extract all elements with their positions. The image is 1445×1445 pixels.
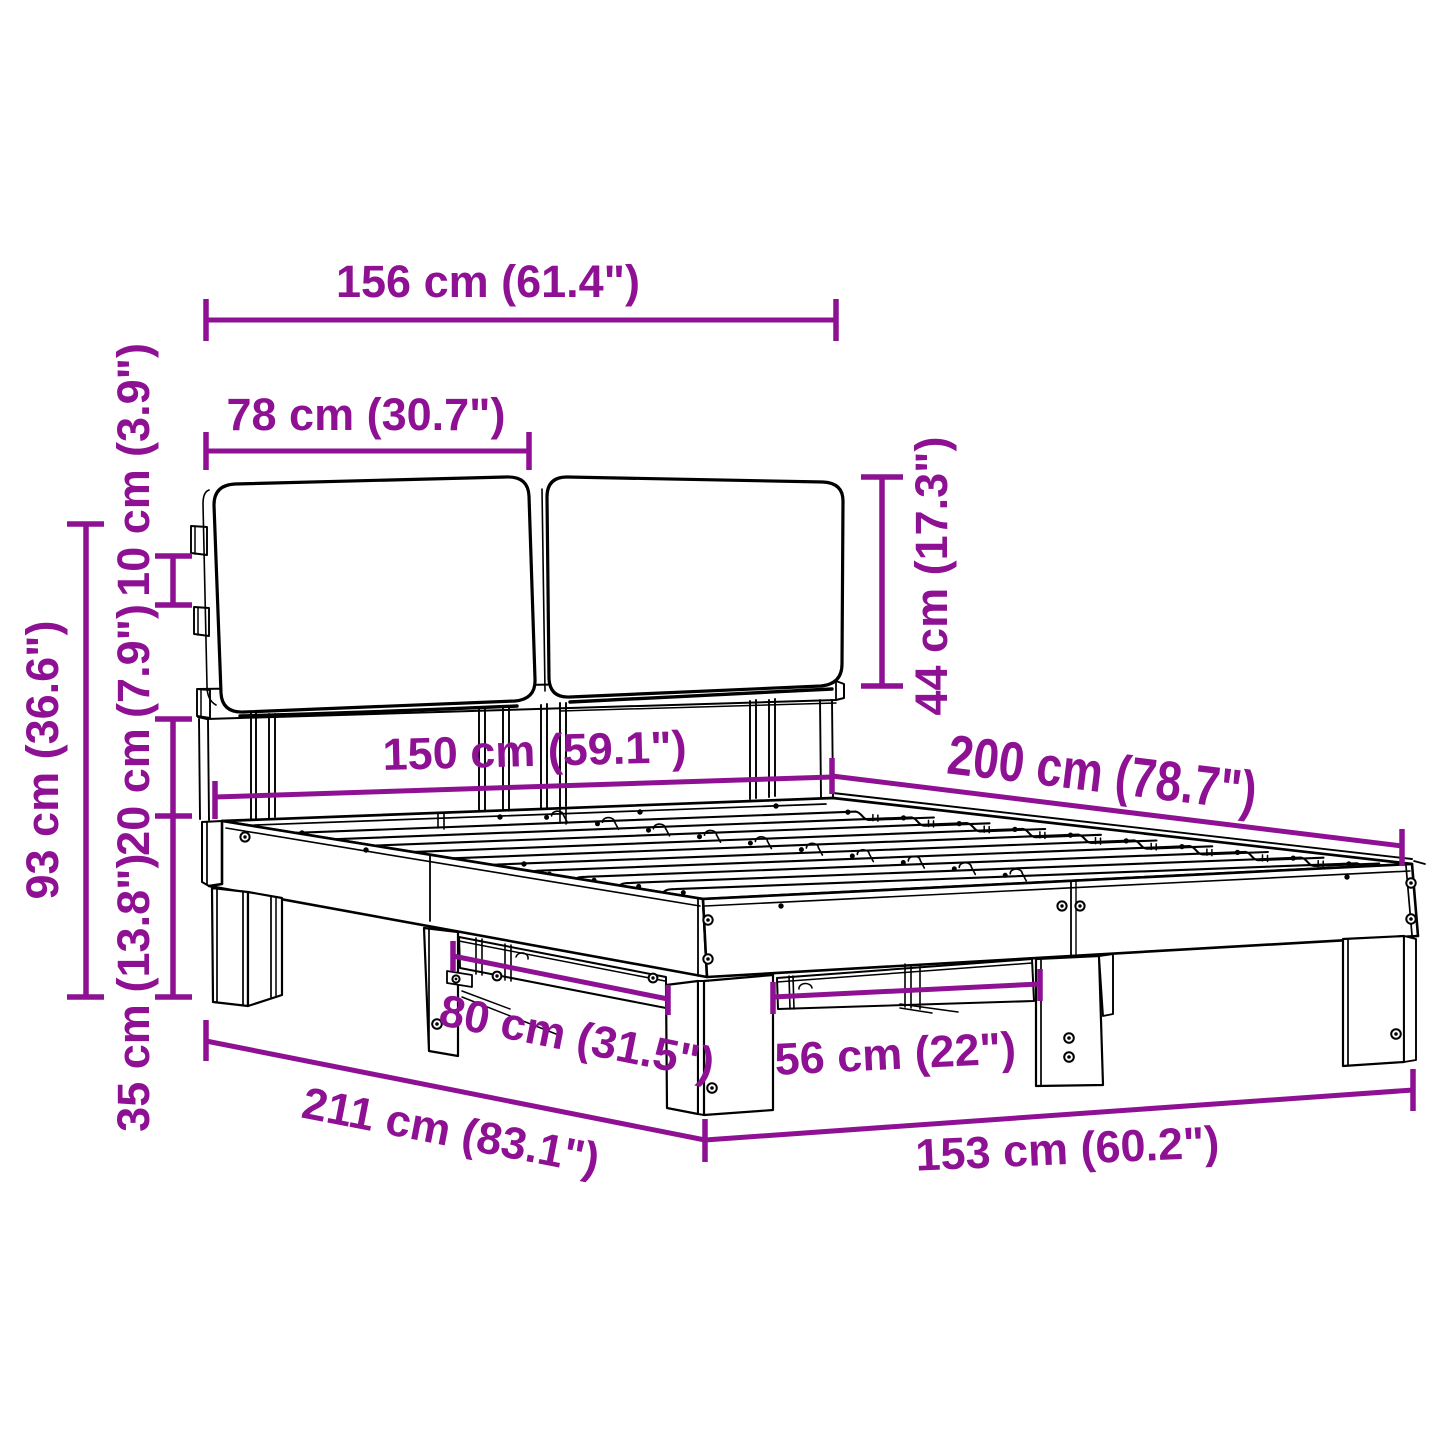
svg-text:156 cm (61.4"): 156 cm (61.4") <box>336 256 640 307</box>
svg-text:(3.9"): (3.9") <box>108 343 159 457</box>
svg-text:(13.8"): (13.8") <box>108 854 159 993</box>
svg-text:(7.9"): (7.9") <box>108 604 159 718</box>
svg-text:150 cm (59.1"): 150 cm (59.1") <box>382 721 687 780</box>
svg-text:44 cm (17.3"): 44 cm (17.3") <box>906 437 957 716</box>
svg-text:93 cm (36.6"): 93 cm (36.6") <box>17 621 68 900</box>
svg-text:35 cm: 35 cm <box>108 1004 159 1132</box>
svg-text:20 cm: 20 cm <box>108 728 159 856</box>
svg-text:10 cm: 10 cm <box>108 469 159 597</box>
svg-text:78 cm (30.7"): 78 cm (30.7") <box>227 389 506 440</box>
